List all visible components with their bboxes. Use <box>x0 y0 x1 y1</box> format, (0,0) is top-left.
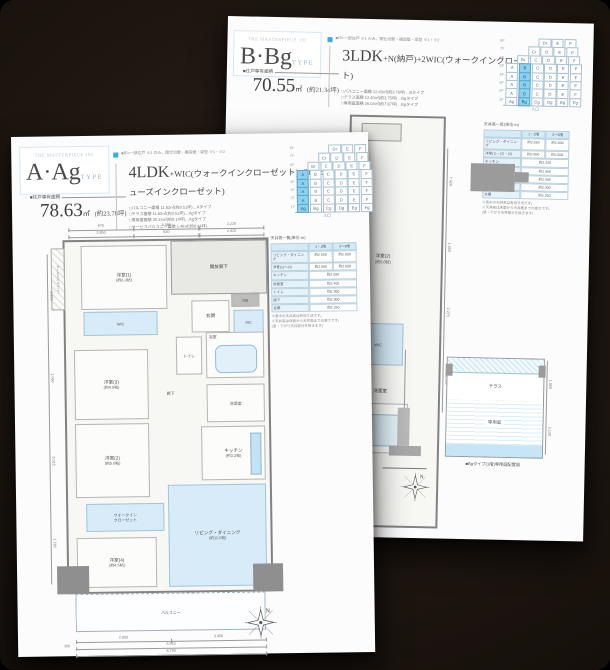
area-value: 70.55㎡ (約21.34坪) <box>242 74 339 101</box>
type-name-text: A·Ag <box>26 159 81 186</box>
floor-label: 1F <box>492 96 505 104</box>
floor-label: 7F <box>283 153 296 161</box>
room-name: クローゼット <box>114 517 137 522</box>
unit-cell: Fg <box>361 203 373 213</box>
section-post <box>397 408 410 446</box>
room-size: (約3.2帖) <box>226 453 242 458</box>
area-unit: ㎡ <box>295 85 302 93</box>
dimension-label: 830 <box>134 229 199 237</box>
room-name: 浴室 <box>209 334 217 339</box>
room-bedroom3: 洋室(3) (約4.5帖) <box>74 349 149 420</box>
area-number: 70.55 <box>252 75 295 97</box>
ceiling-value: 約2.250 <box>520 191 568 200</box>
unit-cell: Bg <box>518 97 530 107</box>
unit-cell: Cg <box>531 97 543 107</box>
private-garden-diagram: テラス 専用庭 <box>445 357 545 459</box>
ceiling-row-label: リビング・ダイニング <box>483 137 521 150</box>
room-size: (約4.5帖) <box>104 385 120 390</box>
unit-cell: Ag <box>297 204 309 214</box>
room-name: 玄関 <box>206 313 215 319</box>
room-washroom: 洗面室 <box>206 383 265 422</box>
floor-label: 4F <box>284 179 297 187</box>
type-name-text: B·Bg <box>240 43 293 70</box>
legend-swatch-icon <box>113 152 118 157</box>
ceiling-rows: リビング・ダイニング 約2.550 約2.500 洋室(1)〜(4) 約2.50… <box>271 250 360 313</box>
ground-line <box>383 467 427 468</box>
type-name: A·AgTYPE <box>20 157 108 194</box>
type-title-box: THE MASTERPIECE 102 A·AgTYPE <box>19 146 110 195</box>
dimension-label: 2.850 <box>68 230 133 238</box>
dimension-label: 5.915 <box>51 456 55 465</box>
dimension-label: 2.130 <box>547 427 551 436</box>
ceiling-note: (梁・下がり天井部分を除きます) <box>272 323 360 329</box>
room-size: (約11.0帖) <box>209 535 227 540</box>
room-name: トイレ <box>183 353 195 358</box>
room-name: 廊下 <box>167 390 175 395</box>
room-size: (約5.0帖) <box>105 461 121 466</box>
ceiling-row: 玄関 約2.250 <box>271 303 359 312</box>
room-name: WIC <box>374 342 382 347</box>
unit-cell: Cg <box>323 203 335 213</box>
dimension-label: 6.790 <box>76 647 266 657</box>
room-name: サービスバルコニー <box>55 265 60 294</box>
room-name: 開放廊下 <box>210 264 228 270</box>
room-walkin-closet: ウォークイン クローゼット <box>86 503 164 532</box>
unit-position-grid: 8FDrEF 7FCrDEF 6FBrCDEF 5FABCDEF 4FABCDE… <box>492 38 583 114</box>
ceiling-note: (梁・下がり天井部分を除きます) <box>482 210 570 217</box>
unit-cell: Eg <box>556 98 568 108</box>
room-open-corridor: 開放廊下 <box>170 239 267 294</box>
floor-label: 8F <box>283 145 296 153</box>
room-hallway: 廊下 <box>156 341 185 445</box>
floor-label: 3F <box>284 187 297 195</box>
section-slab <box>389 445 421 456</box>
room-name: 洗面室 <box>230 400 242 405</box>
dimension-label: 1.780 <box>53 539 57 548</box>
floor-label: 7F <box>493 46 506 54</box>
ceiling-value: 約2.500 <box>545 138 569 151</box>
ceiling-row-label: 玄関 <box>271 304 309 313</box>
area-block: ■住戸専有面積 70.55㎡ (約21.34坪) <box>242 68 339 101</box>
area-unit: ㎡ <box>83 210 90 218</box>
compass-icon: N <box>400 472 431 503</box>
room-name: バルコニー <box>161 609 180 614</box>
unit-cell: Dg <box>335 203 347 213</box>
dimension-row: 2.8508302.620 <box>68 228 264 238</box>
garden-caption: ■Bgタイプ(1階)専用庭配置図 <box>431 460 555 469</box>
floor-label: 8F <box>493 38 506 46</box>
room-wic: WIC <box>83 311 157 336</box>
room-bedroom2: 洋室(2) (約5.0帖) <box>75 423 150 498</box>
floor-label: 1F <box>284 204 297 212</box>
dimension-label: 1.060 <box>548 380 552 389</box>
ceiling-value: 約2.550 <box>309 250 333 263</box>
dimension-label: 2.620 <box>199 228 264 236</box>
room-name: WIC <box>117 321 125 326</box>
spec-base: 3LDK <box>342 47 383 65</box>
ceiling-row-label: リビング・ダイニング <box>271 251 309 264</box>
floor-plan-a: 開放廊下 MB 洋室(1) (約6.3帖) サービスバルコニー WIC 玄関 S… <box>62 237 273 594</box>
room-size: (約4.5帖) <box>109 563 125 568</box>
spec-base: 4LDK <box>128 164 169 182</box>
photo-backdrop: THE MASTERPIECE 102 B·BgTYPE ■住戸専有面積 70.… <box>0 0 610 670</box>
room-bedroom1: 洋室(1) (約6.3帖) <box>81 245 168 310</box>
floor-label: 2F <box>492 88 505 96</box>
room-balcony: バルコニー <box>75 591 266 632</box>
plan-pillar <box>515 172 529 182</box>
plan-pillar <box>470 163 515 192</box>
legend-swatch-icon <box>327 37 332 42</box>
planting-band <box>446 444 542 458</box>
dimension-label: 7.420 <box>448 177 452 186</box>
dimension-chain: 1.0602.130 <box>545 361 553 455</box>
dimension-label: 300 <box>64 644 70 648</box>
unit-position-grid: 8FDrEF 7FCrDEF 6FBrCDEF 5FABCDEF 4FABCDE… <box>283 144 374 219</box>
ceiling-row-label: 玄関 <box>482 190 520 199</box>
compass-icon: N <box>244 605 278 639</box>
garden-area: 専用庭 <box>446 400 543 446</box>
dimension-row: 6.790 <box>76 647 266 657</box>
area-value: 78.63㎡ (約23.78坪) <box>30 199 127 225</box>
dimension-label: 1.060 <box>50 374 54 383</box>
ceiling-table-title: 天井高一覧(単位:m) <box>270 234 358 241</box>
unit-cell: Ag <box>505 97 517 107</box>
unit-cell: Fg <box>569 98 581 108</box>
room-name: 洗面室 <box>373 388 387 393</box>
ceiling-notes: ※表中の天井高は有効寸法です。※天井高は床面から天井面までの高さです。(梁・下が… <box>272 313 360 329</box>
floor-label: 4F <box>493 71 506 79</box>
wall-section-sketch <box>386 349 425 476</box>
ceiling-value: 約2.250 <box>309 303 357 312</box>
terrace-area: テラス <box>447 372 544 403</box>
ceiling-table-title: 天井高一覧(単位:m) <box>484 121 572 129</box>
type-suffix: TYPE <box>292 59 314 66</box>
room-size: (約6.3帖) <box>116 278 132 283</box>
room-name: MB <box>242 298 248 303</box>
ceiling-table: 天井高一覧(単位:m) 1・2階 3〜5階 リビング・ダイニング 約2.550 … <box>270 234 359 329</box>
bathtub-icon <box>215 345 257 374</box>
floor-label: 5F <box>493 63 506 71</box>
type-suffix: TYPE <box>81 174 103 181</box>
ceiling-value: 約2.500 <box>333 250 357 263</box>
ceiling-value: 約2.550 <box>521 138 545 151</box>
meter-box: MB <box>231 294 259 307</box>
kitchen-counter-icon <box>250 433 262 475</box>
floor-label: 6F <box>493 54 506 62</box>
floor-label: 2F <box>284 195 297 203</box>
ceiling-notes: ※表中の天井高は有効寸法です。※天井高は床面から天井面までの高さです。(梁・下が… <box>482 201 570 217</box>
floor-label: 5F <box>283 170 296 178</box>
room-sic: SIC <box>233 309 263 333</box>
garden-label: 専用庭 <box>486 419 503 425</box>
floor-label: 3F <box>493 80 506 88</box>
page-a-ag-type: THE MASTERPIECE 102 A·AgTYPE ■住戸専有面積 78.… <box>11 132 375 657</box>
compass-north-label: N <box>420 474 424 480</box>
dimension-label: 1.050 <box>447 242 451 251</box>
wall-block <box>57 566 89 594</box>
dimension-label: 2.275 <box>446 308 450 317</box>
compass-north-label: N <box>266 608 271 614</box>
unit-cell: Bg <box>310 203 322 213</box>
area-number: 78.63 <box>40 200 83 222</box>
floor-label: 6F <box>283 162 296 170</box>
ceiling-row: 玄関 約2.250 <box>482 190 570 200</box>
room-name: SIC <box>245 319 252 324</box>
room-kitchen: キッチン (約3.2帖) <box>201 425 266 480</box>
unit-cell: Dg <box>544 97 556 107</box>
area-block: ■住戸専有面積 78.63㎡ (約23.78坪) <box>30 193 127 225</box>
room-bathroom: 浴室 <box>206 331 265 378</box>
room-entrance: 玄関 <box>191 300 229 333</box>
unit-cell: Eg <box>348 203 360 213</box>
dimension-label: 2.870 <box>49 291 53 300</box>
wall-block <box>253 563 283 591</box>
